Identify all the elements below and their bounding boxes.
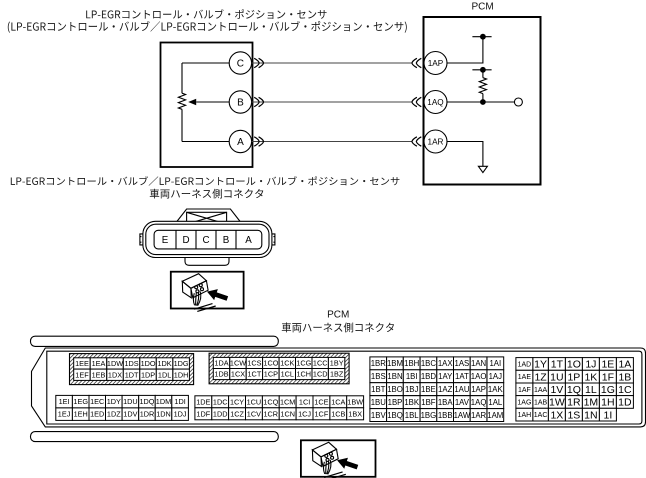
svg-text:1DC: 1DC: [213, 397, 228, 406]
svg-text:1DR: 1DR: [140, 410, 155, 419]
svg-text:1CN: 1CN: [280, 409, 295, 418]
svg-text:1F: 1F: [602, 371, 614, 383]
svg-text:1Z: 1Z: [534, 371, 547, 383]
svg-text:1AI: 1AI: [489, 359, 501, 368]
svg-text:1BD: 1BD: [421, 372, 437, 381]
svg-text:1G: 1G: [601, 384, 615, 396]
svg-text:D: D: [182, 235, 189, 246]
svg-text:1AB: 1AB: [534, 399, 548, 406]
svg-text:1BA: 1BA: [438, 398, 454, 407]
svg-text:1M: 1M: [584, 397, 599, 409]
svg-text:1ED: 1ED: [90, 410, 104, 419]
svg-text:1AQ: 1AQ: [471, 398, 487, 407]
svg-text:1DI: 1DI: [174, 397, 185, 406]
svg-text:1AG: 1AG: [517, 399, 531, 406]
svg-text:1CI: 1CI: [299, 397, 310, 406]
svg-text:1AQ: 1AQ: [427, 98, 443, 107]
svg-text:1AW: 1AW: [454, 411, 471, 420]
svg-text:1CG: 1CG: [296, 359, 311, 368]
svg-text:1AM: 1AM: [487, 411, 503, 420]
svg-text:1DV: 1DV: [123, 410, 137, 419]
svg-text:1DZ: 1DZ: [107, 410, 121, 419]
svg-text:1CP: 1CP: [264, 370, 278, 379]
svg-text:1DN: 1DN: [156, 410, 171, 419]
svg-text:1P: 1P: [567, 371, 580, 383]
svg-text:1EE: 1EE: [75, 359, 89, 368]
svg-text:1CD: 1CD: [313, 370, 328, 379]
svg-text:PCM: PCM: [471, 1, 493, 12]
svg-text:1DF: 1DF: [196, 409, 210, 418]
svg-text:1R: 1R: [567, 397, 581, 409]
svg-text:1H: 1H: [601, 397, 614, 409]
svg-text:1CX: 1CX: [231, 370, 245, 379]
svg-text:1BG: 1BG: [421, 411, 437, 420]
svg-text:1BO: 1BO: [387, 385, 403, 394]
svg-text:1DO: 1DO: [141, 359, 156, 368]
svg-text:1DY: 1DY: [107, 397, 121, 406]
svg-text:1AR: 1AR: [471, 411, 487, 420]
svg-text:1N: 1N: [584, 409, 597, 421]
svg-text:1BX: 1BX: [348, 409, 362, 418]
svg-text:1DM: 1DM: [156, 397, 171, 406]
svg-text:1DD: 1DD: [213, 409, 228, 418]
svg-text:1S: 1S: [567, 409, 580, 421]
svg-text:1EJ: 1EJ: [58, 410, 71, 419]
svg-text:C: C: [237, 59, 244, 70]
svg-text:1BS: 1BS: [371, 372, 386, 381]
svg-text:1U: 1U: [550, 371, 563, 383]
svg-text:1BR: 1BR: [371, 359, 387, 368]
svg-text:1X: 1X: [550, 409, 563, 421]
svg-text:A: A: [245, 235, 252, 246]
svg-text:1C: 1C: [618, 384, 632, 396]
svg-text:1EH: 1EH: [74, 410, 88, 419]
svg-text:1DU: 1DU: [123, 397, 138, 406]
svg-text:1DW: 1DW: [107, 359, 123, 368]
svg-text:1BT: 1BT: [371, 385, 386, 394]
svg-text:1AE: 1AE: [518, 374, 532, 381]
svg-text:1CE: 1CE: [314, 397, 328, 406]
svg-text:1CH: 1CH: [296, 370, 311, 379]
svg-text:1B: 1B: [618, 371, 631, 383]
svg-text:1AK: 1AK: [488, 385, 504, 394]
svg-text:1AR: 1AR: [428, 138, 444, 147]
svg-text:1EI: 1EI: [59, 397, 70, 406]
svg-text:1BY: 1BY: [330, 359, 344, 368]
svg-text:1J: 1J: [585, 359, 596, 371]
svg-text:1DJ: 1DJ: [174, 410, 187, 419]
svg-text:1W: 1W: [549, 397, 565, 409]
svg-text:1AZ: 1AZ: [438, 385, 453, 394]
svg-text:1AU: 1AU: [454, 385, 470, 394]
svg-text:1AS: 1AS: [455, 359, 470, 368]
svg-text:1O: 1O: [567, 359, 581, 371]
svg-text:1EB: 1EB: [92, 370, 106, 379]
svg-text:1DL: 1DL: [158, 370, 171, 379]
svg-text:1BP: 1BP: [388, 398, 403, 407]
svg-text:1BI: 1BI: [406, 372, 418, 381]
svg-text:1CJ: 1CJ: [298, 409, 311, 418]
svg-text:1I: 1I: [604, 409, 613, 421]
svg-text:1CB: 1CB: [331, 409, 345, 418]
svg-text:1DX: 1DX: [108, 370, 122, 379]
svg-text:1DH: 1DH: [174, 370, 189, 379]
svg-text:1BE: 1BE: [421, 385, 436, 394]
svg-text:1CO: 1CO: [263, 359, 278, 368]
svg-text:1BL: 1BL: [405, 411, 420, 420]
svg-text:1DG: 1DG: [174, 359, 189, 368]
svg-text:1BF: 1BF: [421, 398, 436, 407]
svg-text:1DS: 1DS: [124, 359, 138, 368]
svg-text:1DT: 1DT: [125, 370, 139, 379]
svg-text:1T: 1T: [551, 359, 564, 371]
svg-text:1CL: 1CL: [281, 370, 294, 379]
svg-text:B: B: [237, 98, 244, 109]
svg-text:1AL: 1AL: [488, 398, 503, 407]
svg-text:1EF: 1EF: [75, 370, 89, 379]
svg-text:1BM: 1BM: [387, 359, 403, 368]
svg-text:1BC: 1BC: [421, 359, 437, 368]
svg-text:1BH: 1BH: [404, 359, 419, 368]
svg-text:1AO: 1AO: [471, 372, 487, 381]
svg-text:1BN: 1BN: [387, 372, 402, 381]
svg-text:1AY: 1AY: [438, 372, 453, 381]
svg-text:1Q: 1Q: [567, 384, 581, 396]
svg-text:1AF: 1AF: [518, 387, 531, 394]
svg-text:PCM: PCM: [327, 310, 349, 321]
svg-text:1CW: 1CW: [230, 359, 246, 368]
svg-text:1CR: 1CR: [263, 409, 278, 418]
svg-text:1AC: 1AC: [534, 412, 548, 419]
svg-text:C: C: [202, 235, 209, 246]
svg-text:1CZ: 1CZ: [230, 409, 244, 418]
svg-text:1AD: 1AD: [518, 361, 532, 368]
svg-text:1EA: 1EA: [92, 359, 106, 368]
svg-text:1CS: 1CS: [247, 359, 261, 368]
svg-text:1DQ: 1DQ: [139, 397, 154, 406]
svg-text:1BZ: 1BZ: [330, 370, 344, 379]
svg-text:1AP: 1AP: [428, 59, 444, 68]
svg-text:1BK: 1BK: [404, 398, 420, 407]
svg-text:1CQ: 1CQ: [263, 397, 278, 406]
svg-text:1CM: 1CM: [280, 397, 295, 406]
svg-text:1DP: 1DP: [141, 370, 155, 379]
svg-text:1K: 1K: [584, 371, 597, 383]
svg-text:1CY: 1CY: [230, 397, 244, 406]
svg-text:1V: 1V: [550, 384, 563, 396]
svg-text:1BW: 1BW: [347, 397, 363, 406]
svg-text:1EG: 1EG: [73, 397, 88, 406]
svg-text:1CT: 1CT: [248, 370, 262, 379]
svg-text:1BJ: 1BJ: [405, 385, 419, 394]
svg-text:1CK: 1CK: [280, 359, 294, 368]
svg-text:1BU: 1BU: [371, 398, 387, 407]
svg-text:1CA: 1CA: [331, 397, 345, 406]
svg-text:1AN: 1AN: [471, 359, 486, 368]
svg-text:1BB: 1BB: [438, 411, 453, 420]
svg-text:1BV: 1BV: [371, 411, 387, 420]
svg-text:1BQ: 1BQ: [387, 411, 403, 420]
svg-text:1CU: 1CU: [247, 397, 262, 406]
svg-text:1AT: 1AT: [455, 372, 469, 381]
svg-text:1AP: 1AP: [471, 385, 486, 394]
svg-text:1AA: 1AA: [534, 387, 548, 394]
svg-text:1AX: 1AX: [438, 359, 454, 368]
svg-text:1D: 1D: [618, 397, 632, 409]
svg-text:A: A: [237, 137, 244, 148]
svg-text:1Y: 1Y: [534, 359, 547, 371]
svg-text:1E: 1E: [601, 359, 614, 371]
svg-text:1AV: 1AV: [455, 398, 470, 407]
svg-text:1AJ: 1AJ: [489, 372, 503, 381]
svg-text:1L: 1L: [585, 384, 597, 396]
svg-text:1AH: 1AH: [518, 412, 532, 419]
svg-text:1EC: 1EC: [90, 397, 104, 406]
svg-text:1DA: 1DA: [214, 359, 228, 368]
svg-text:1CC: 1CC: [313, 359, 328, 368]
svg-text:E: E: [162, 235, 169, 246]
svg-text:1CV: 1CV: [247, 409, 261, 418]
svg-text:1DB: 1DB: [214, 370, 228, 379]
svg-text:1CF: 1CF: [315, 409, 329, 418]
svg-text:B: B: [223, 235, 230, 246]
svg-text:1DK: 1DK: [157, 359, 171, 368]
svg-text:1A: 1A: [618, 359, 631, 371]
svg-text:1DE: 1DE: [196, 397, 210, 406]
